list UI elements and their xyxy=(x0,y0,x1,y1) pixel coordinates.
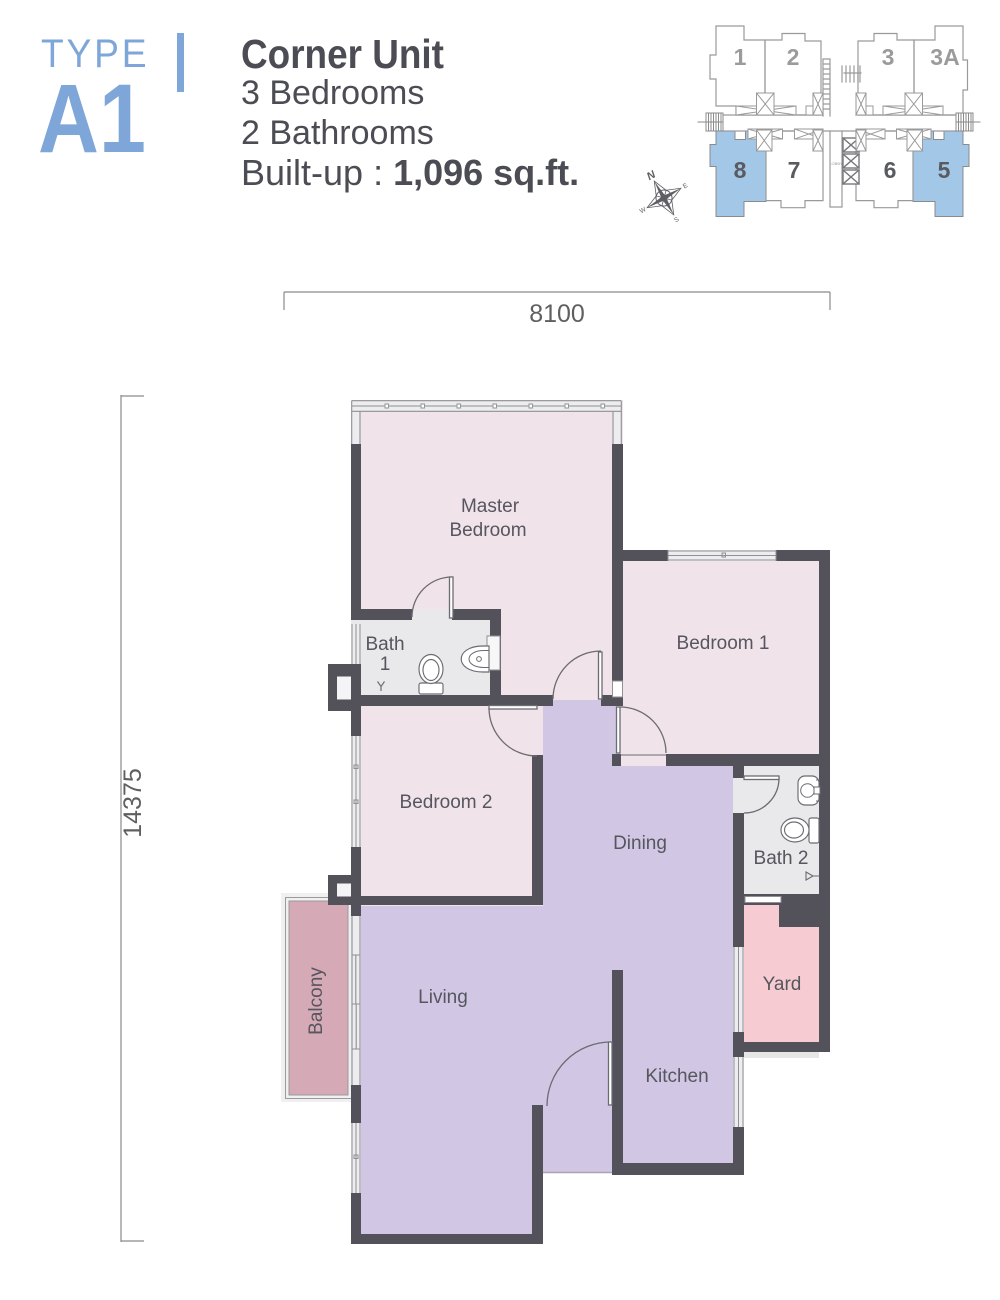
svg-text:E: E xyxy=(682,182,690,191)
svg-text:8100: 8100 xyxy=(529,300,585,328)
svg-text:Balcony: Balcony xyxy=(306,967,327,1035)
svg-text:Bath: Bath xyxy=(365,634,404,655)
svg-text:Master: Master xyxy=(461,496,520,517)
svg-text:6: 6 xyxy=(884,157,897,183)
svg-text:LOBBY: LOBBY xyxy=(829,161,843,166)
svg-text:W: W xyxy=(639,206,649,216)
svg-text:Bedroom: Bedroom xyxy=(449,520,526,541)
svg-text:1: 1 xyxy=(380,654,391,675)
svg-text:Dining: Dining xyxy=(613,833,667,854)
svg-text:3A: 3A xyxy=(930,44,959,70)
svg-text:Kitchen: Kitchen xyxy=(645,1066,708,1087)
svg-text:Bath 2: Bath 2 xyxy=(754,848,809,869)
svg-text:3: 3 xyxy=(882,44,895,70)
svg-text:7: 7 xyxy=(788,157,801,183)
svg-text:Living: Living xyxy=(418,987,468,1008)
svg-text:14375: 14375 xyxy=(119,768,147,838)
svg-text:8: 8 xyxy=(734,157,747,183)
svg-text:Yard: Yard xyxy=(763,974,802,995)
svg-text:5: 5 xyxy=(938,157,951,183)
svg-text:2: 2 xyxy=(787,44,800,70)
svg-text:Bedroom 1: Bedroom 1 xyxy=(677,633,770,654)
svg-text:N: N xyxy=(645,168,659,183)
svg-text:Bedroom 2: Bedroom 2 xyxy=(400,792,493,813)
svg-text:S: S xyxy=(673,216,681,225)
svg-text:1: 1 xyxy=(734,44,747,70)
